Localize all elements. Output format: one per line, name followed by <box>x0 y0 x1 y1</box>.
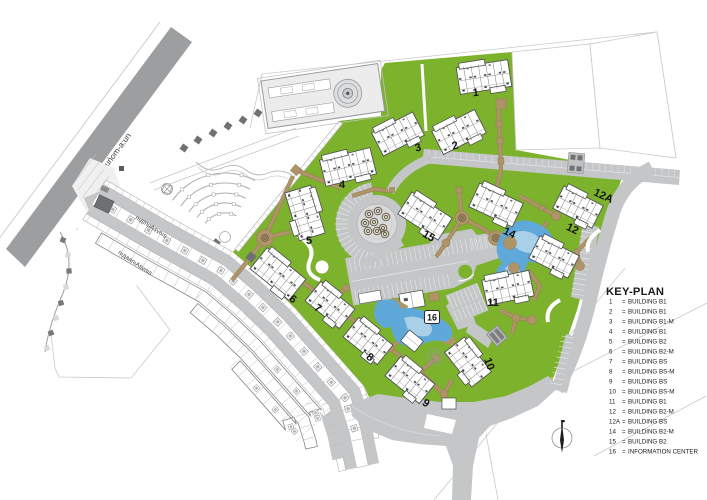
svg-text:BUILDING BS-M: BUILDING BS-M <box>628 369 674 376</box>
svg-text:=: = <box>622 449 626 456</box>
svg-text:KEY-PLAN: KEY-PLAN <box>606 286 664 298</box>
svg-text:=: = <box>622 309 626 316</box>
svg-text:BUILDING B1-M: BUILDING B1-M <box>628 319 674 326</box>
svg-text:=: = <box>622 419 626 426</box>
svg-text:=: = <box>622 399 626 406</box>
svg-text:6: 6 <box>609 349 613 356</box>
svg-text:16: 16 <box>427 313 437 323</box>
svg-text:BUILDING BS: BUILDING BS <box>628 379 667 386</box>
svg-text:5: 5 <box>609 339 613 346</box>
svg-text:5: 5 <box>306 235 312 247</box>
svg-text:BUILDING B1: BUILDING B1 <box>628 309 667 316</box>
svg-text:=: = <box>622 359 626 366</box>
svg-text:9: 9 <box>609 379 613 386</box>
svg-text:BUILDING BS: BUILDING BS <box>628 419 667 426</box>
svg-text:10: 10 <box>609 389 616 396</box>
svg-text:INFORMATION CENTER: INFORMATION CENTER <box>628 449 699 456</box>
svg-text:BUILDING B2: BUILDING B2 <box>628 339 667 346</box>
svg-text:=: = <box>622 339 626 346</box>
svg-text:=: = <box>622 389 626 396</box>
svg-text:=: = <box>622 409 626 416</box>
svg-text:11: 11 <box>487 297 499 309</box>
svg-text:=: = <box>622 379 626 386</box>
svg-text:=: = <box>622 319 626 326</box>
svg-text:=: = <box>622 439 626 446</box>
svg-text:14: 14 <box>609 429 616 436</box>
svg-text:16: 16 <box>609 449 616 456</box>
svg-text:4: 4 <box>609 329 613 336</box>
svg-text:4: 4 <box>339 179 346 191</box>
svg-text:11: 11 <box>609 399 616 406</box>
svg-text:1: 1 <box>609 299 613 306</box>
svg-text:8: 8 <box>609 369 613 376</box>
svg-text:3: 3 <box>609 319 613 326</box>
svg-text:BUILDING B1: BUILDING B1 <box>628 399 667 406</box>
svg-text:BUILDING B1: BUILDING B1 <box>628 299 667 306</box>
svg-text:=: = <box>622 349 626 356</box>
svg-text:1: 1 <box>472 87 479 99</box>
svg-text:BUILDING B2: BUILDING B2 <box>628 439 667 446</box>
svg-text:=: = <box>622 429 626 436</box>
svg-text:BUILDING B2-M: BUILDING B2-M <box>628 429 674 436</box>
svg-text:=: = <box>622 299 626 306</box>
svg-text:2: 2 <box>609 309 613 316</box>
svg-text:7: 7 <box>609 359 613 366</box>
svg-text:15: 15 <box>609 439 616 446</box>
svg-text:BUILDING BS: BUILDING BS <box>628 359 667 366</box>
svg-text:BUILDING B2-M: BUILDING B2-M <box>628 409 674 416</box>
svg-text:BUILDING BS-M: BUILDING BS-M <box>628 389 674 396</box>
svg-text:BUILDING B1: BUILDING B1 <box>628 329 667 336</box>
svg-text:12A: 12A <box>609 419 621 426</box>
svg-text:=: = <box>622 369 626 376</box>
svg-text:BUILDING B2-M: BUILDING B2-M <box>628 349 674 356</box>
svg-text:12: 12 <box>609 409 616 416</box>
svg-text:=: = <box>622 329 626 336</box>
